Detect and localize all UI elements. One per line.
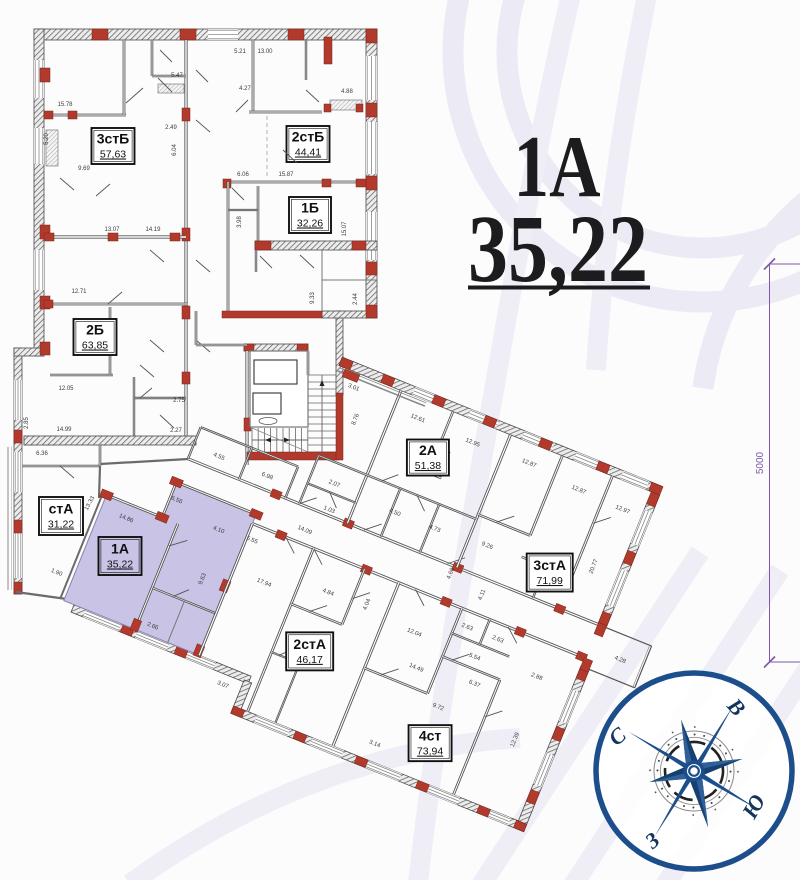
svg-text:2.85: 2.85 [24,417,30,429]
svg-text:5.47: 5.47 [171,73,183,79]
svg-text:2.27: 2.27 [170,428,182,434]
svg-text:46,17: 46,17 [297,654,323,666]
svg-text:44,41: 44,41 [295,147,321,159]
svg-text:5000: 5000 [755,451,766,474]
svg-text:4.27: 4.27 [239,86,251,92]
svg-text:4.88: 4.88 [341,89,353,95]
svg-text:6.06: 6.06 [237,172,249,178]
svg-text:13.00: 13.00 [257,49,273,55]
svg-text:9.33: 9.33 [310,292,316,304]
svg-text:5.21: 5.21 [234,49,246,55]
svg-text:13.07: 13.07 [104,227,120,233]
svg-text:15.78: 15.78 [57,102,73,108]
svg-text:32,26: 32,26 [297,218,323,230]
svg-text:31,22: 31,22 [48,519,74,531]
svg-text:2Б: 2Б [86,322,104,338]
svg-text:1Б: 1Б [301,200,319,216]
svg-text:63,85: 63,85 [82,340,108,352]
svg-text:73,94: 73,94 [417,746,443,758]
svg-text:2А: 2А [419,442,437,458]
svg-text:15.07: 15.07 [342,221,348,237]
svg-text:4ст: 4ст [419,728,442,744]
svg-text:3стА: 3стА [533,557,566,573]
svg-text:15.87: 15.87 [278,172,294,178]
svg-text:3.98: 3.98 [237,216,243,228]
svg-text:71,99: 71,99 [537,575,563,587]
svg-text:14.99: 14.99 [56,427,72,433]
svg-text:стА: стА [49,501,74,517]
svg-text:2стБ: 2стБ [292,129,325,145]
svg-text:6.36: 6.36 [36,451,48,457]
svg-text:57,63: 57,63 [100,149,126,161]
svg-text:5.20: 5.20 [44,133,50,145]
svg-text:51,38: 51,38 [415,460,441,472]
svg-text:2стА: 2стА [293,636,326,652]
svg-text:2.49: 2.49 [165,125,177,131]
svg-text:3стБ: 3стБ [97,131,130,147]
svg-text:2.75: 2.75 [173,398,185,404]
svg-text:14.19: 14.19 [145,227,161,233]
svg-text:9.69: 9.69 [78,166,90,172]
svg-text:1А: 1А [111,541,129,557]
svg-text:6.04: 6.04 [172,144,178,156]
svg-text:2.44: 2.44 [353,293,359,305]
svg-text:35,22: 35,22 [107,559,133,571]
svg-text:12.05: 12.05 [58,386,74,392]
svg-text:12.71: 12.71 [71,289,87,295]
